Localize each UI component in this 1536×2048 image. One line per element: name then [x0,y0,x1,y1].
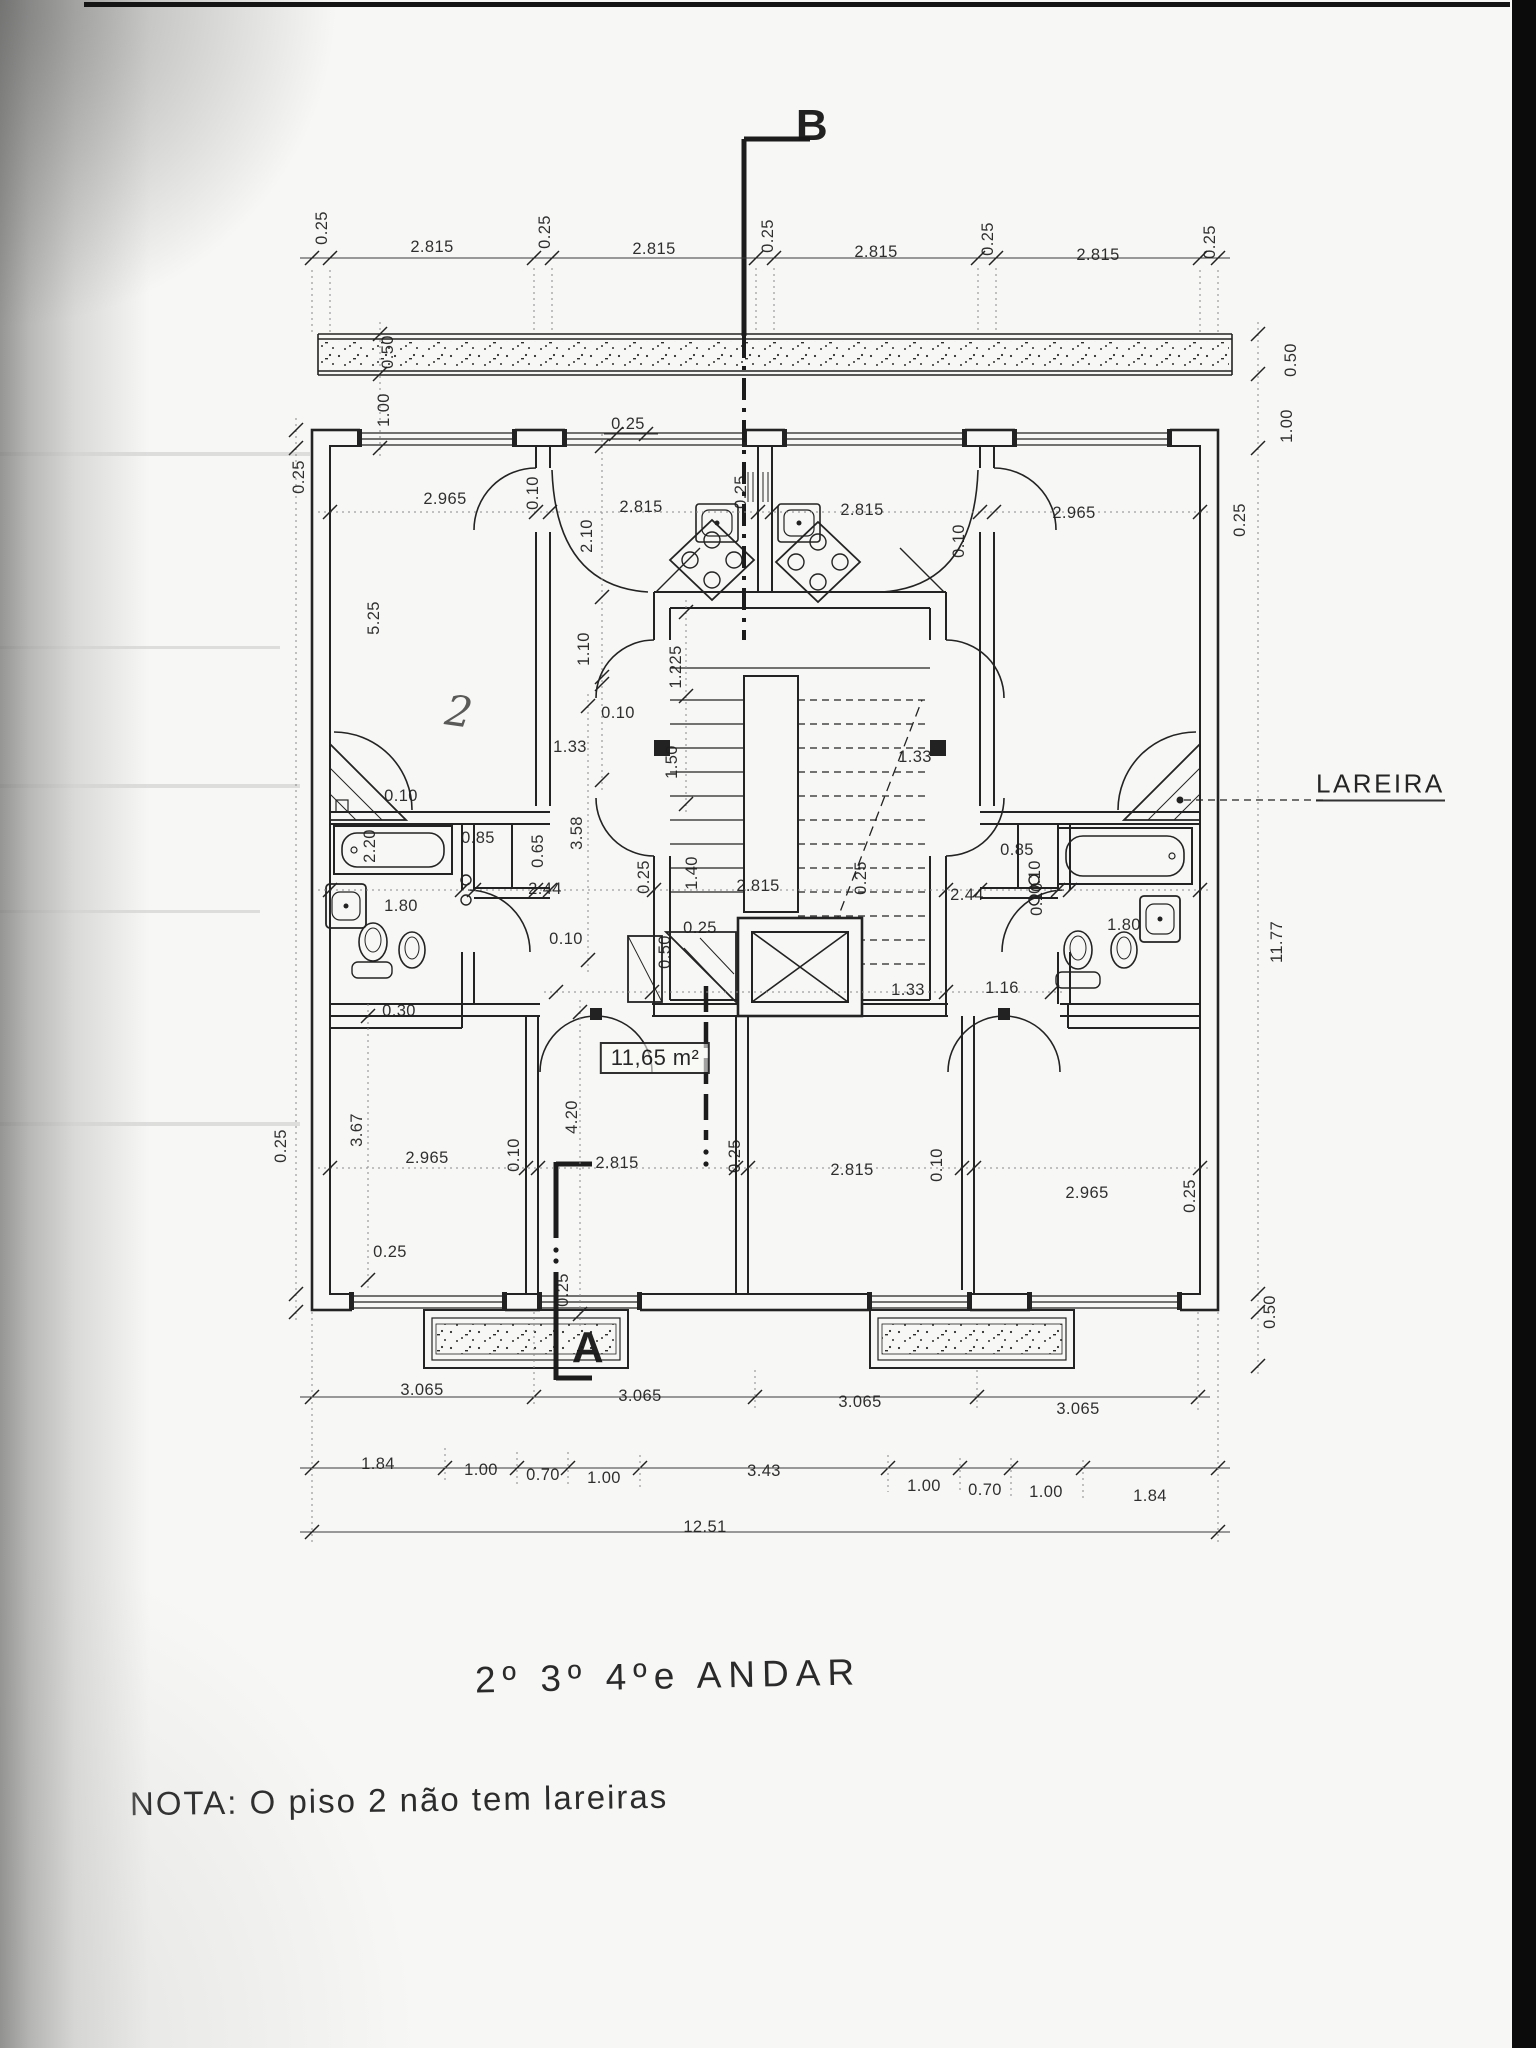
scan-edge-right [1512,0,1536,2048]
dim-label: 0.25 [683,920,717,937]
scan-edge-top [84,2,1510,7]
room-area-label: 11,65 m² [600,1042,710,1074]
dim-label: 1.00 [587,1470,621,1487]
floor-plan-drawing [0,0,1536,2048]
dim-label: 1.40 [684,856,701,890]
dim-label: 3.065 [400,1382,443,1399]
dim-label: 0.85 [1000,842,1034,859]
dim-label: 1.00 [1029,1484,1063,1501]
dim-label: 3.67 [349,1113,366,1147]
dim-label: 2.44 [950,887,984,904]
dim-label: 0.25 [611,416,645,433]
dim-label: 1.50 [664,745,681,779]
dim-label: 0.25 [1232,503,1249,537]
section-mark-a: A [572,1326,604,1370]
dim-label: 0.70 [968,1482,1002,1499]
dim-label: 2.815 [854,244,897,261]
dim-label: 0.25 [291,460,308,494]
dim-label: 2.965 [405,1150,448,1167]
top-balcony [318,334,1232,375]
dim-label: 0.10 [506,1138,523,1172]
dim-label: 0.25 [1182,1179,1199,1213]
drawing-sheet: 0.25 2.815 0.25 2.815 0.25 2.815 0.25 2.… [0,0,1536,2048]
dim-label: 3.065 [838,1394,881,1411]
dim-label: 2.815 [736,878,779,895]
dim-label: 1.84 [1133,1488,1167,1505]
dim-label: 0.25 [314,211,331,245]
dim-label: 0.25 [373,1244,407,1261]
dim-label: 0.10 [601,705,635,722]
dim-label: 0.10 [1029,882,1046,916]
handwritten-room-mark: 2 [443,689,476,734]
dim-label: 1.80 [384,898,418,915]
dim-label: 2.815 [595,1155,638,1172]
kitchen-fixtures [552,470,978,602]
dim-label: 2.965 [1052,505,1095,522]
dim-label: 2.815 [1076,247,1119,264]
dim-label: 1.00 [376,393,393,427]
dim-label: 0.25 [555,1273,572,1307]
dim-label: 0.85 [461,830,495,847]
dim-label: 2.815 [619,499,662,516]
dim-label: 12.51 [683,1519,726,1536]
dim-label: 3.58 [569,816,586,850]
dim-label: 0.25 [1202,225,1219,259]
section-mark-b: B [796,104,828,148]
dim-label: 0.25 [636,860,653,894]
dim-label: 2.965 [423,491,466,508]
dim-label: 3.43 [747,1463,781,1480]
dim-label: 2.10 [579,519,596,553]
dim-label: 0.50 [657,935,674,969]
dim-label: 1.33 [898,749,932,766]
dim-label: 0.25 [733,475,750,509]
dim-label: 3.065 [618,1388,661,1405]
dim-label: 0.50 [1262,1295,1279,1329]
dim-label: 2.815 [840,502,883,519]
dim-label: 4.20 [564,1100,581,1134]
dim-label: 2.44 [528,881,562,898]
dim-label: 2.815 [632,241,675,258]
dim-label: 1.00 [1279,409,1296,443]
dim-label: 0.10 [525,476,542,510]
scanned-floor-plan-page: 0.25 2.815 0.25 2.815 0.25 2.815 0.25 2.… [0,0,1536,2048]
fireplace-label: LAREIRA [1316,771,1445,802]
dim-label: 0.25 [853,861,870,895]
walls [312,430,1218,1310]
dim-label: 0.30 [382,1003,416,1020]
dim-label: 1.16 [985,980,1019,997]
dim-label: 3.065 [1056,1401,1099,1418]
plan-title: 2º 3º 4ºe ANDAR [475,1653,862,1698]
dim-label: 1.84 [361,1456,395,1473]
dim-label: 0.10 [929,1148,946,1182]
dim-label: 0.65 [530,834,547,868]
dim-label: 1.33 [891,982,925,999]
dim-label: 0.25 [760,219,777,253]
section-lines [553,139,810,1380]
dim-label: 0.25 [980,222,997,256]
dim-label: 2.20 [362,829,379,863]
dim-label: 0.70 [526,1467,560,1484]
dim-label: 0.25 [727,1139,744,1173]
plan-note: NOTA: O piso 2 não tem lareiras [130,1780,669,1821]
dim-label: 1.00 [907,1478,941,1495]
dim-label: 1.00 [464,1462,498,1479]
dim-label: 1.80 [1107,917,1141,934]
balconies [424,1310,1074,1368]
fireplaces [330,744,1326,820]
dim-label: 0.25 [537,215,554,249]
dim-label: 0.10 [549,931,583,948]
dim-label: 0.25 [273,1129,290,1163]
dim-label: 0.10 [384,788,418,805]
dim-label: 11.77 [1269,921,1286,963]
dim-label: 2.815 [410,239,453,256]
dim-label: 0.50 [1283,343,1300,377]
dim-label: 5.25 [366,601,383,635]
dim-label: 2.815 [830,1162,873,1179]
dim-label: 1.33 [553,739,587,756]
dim-label: 2.965 [1065,1185,1108,1202]
dim-label: 0.10 [951,524,968,558]
dim-label: 1.10 [576,632,593,666]
dim-label: 1.225 [668,645,685,688]
dim-label: 0.50 [380,335,397,369]
